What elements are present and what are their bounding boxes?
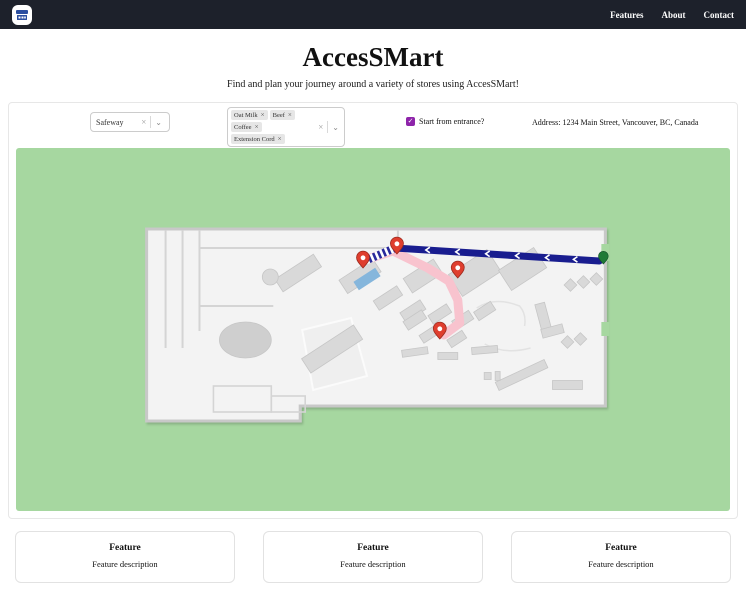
feature-title: Feature — [520, 543, 722, 553]
nav-link-features[interactable]: Features — [610, 10, 643, 20]
remove-item-icon[interactable]: × — [255, 123, 259, 131]
app-logo[interactable] — [12, 5, 32, 25]
feature-card-1: Feature Feature description — [15, 531, 235, 583]
remove-item-icon[interactable]: × — [278, 135, 282, 143]
store-select-value: Safeway — [96, 118, 139, 127]
feature-description: Feature description — [24, 559, 226, 569]
map-canvas[interactable] — [16, 148, 730, 511]
remove-item-icon[interactable]: × — [288, 111, 292, 119]
feature-card-2: Feature Feature description — [263, 531, 483, 583]
feature-cards: Feature Feature description Feature Feat… — [15, 531, 731, 583]
toolbar: Safeway × ⌄ Oat Milk × Beef × Coffee × — [9, 103, 737, 141]
feature-description: Feature description — [272, 559, 474, 569]
entrance-checkbox-group[interactable]: ✓ Start from entrance? — [406, 117, 484, 126]
select-divider — [150, 116, 151, 128]
page-title: AccesSMart — [0, 42, 746, 73]
items-select-controls: × ⌄ — [316, 121, 341, 133]
selected-items: Oat Milk × Beef × Coffee × Extension Cor… — [231, 110, 314, 144]
feature-title: Feature — [24, 543, 226, 553]
entrance-checkbox-label: Start from entrance? — [419, 117, 484, 126]
remove-item-icon[interactable]: × — [261, 111, 265, 119]
entrance-checkbox[interactable]: ✓ — [406, 117, 415, 126]
item-tag: Beef × — [270, 110, 295, 120]
item-tag: Extension Cord × — [231, 134, 285, 144]
items-select[interactable]: Oat Milk × Beef × Coffee × Extension Cor… — [227, 107, 345, 147]
item-tag-label: Beef — [273, 112, 285, 119]
store-select[interactable]: Safeway × ⌄ — [90, 112, 170, 132]
item-tag-label: Oat Milk — [234, 112, 258, 119]
feature-card-3: Feature Feature description — [511, 531, 731, 583]
item-tag-label: Extension Cord — [234, 136, 275, 143]
feature-description: Feature description — [520, 559, 722, 569]
entrance-gap — [601, 322, 609, 336]
store-map[interactable] — [16, 148, 730, 511]
item-tag-label: Coffee — [234, 124, 252, 131]
navbar: Features About Contact — [0, 0, 746, 29]
page-subtitle: Find and plan your journey around a vari… — [0, 79, 746, 90]
nav-links: Features About Contact — [610, 10, 734, 20]
nav-link-contact[interactable]: Contact — [704, 10, 735, 20]
storefront-icon — [15, 8, 29, 22]
store-address: Address: 1234 Main Street, Vancouver, BC… — [532, 118, 698, 127]
chevron-down-icon[interactable]: ⌄ — [330, 123, 341, 132]
item-tag: Coffee × — [231, 122, 262, 132]
item-tag: Oat Milk × — [231, 110, 268, 120]
main-panel: Safeway × ⌄ Oat Milk × Beef × Coffee × — [8, 102, 738, 519]
clear-all-icon[interactable]: × — [316, 122, 325, 132]
chevron-down-icon[interactable]: ⌄ — [153, 118, 164, 127]
select-divider — [327, 121, 328, 133]
nav-link-about[interactable]: About — [661, 10, 685, 20]
feature-title: Feature — [272, 543, 474, 553]
clear-icon[interactable]: × — [139, 117, 148, 127]
hero: AccesSMart Find and plan your journey ar… — [0, 29, 746, 90]
